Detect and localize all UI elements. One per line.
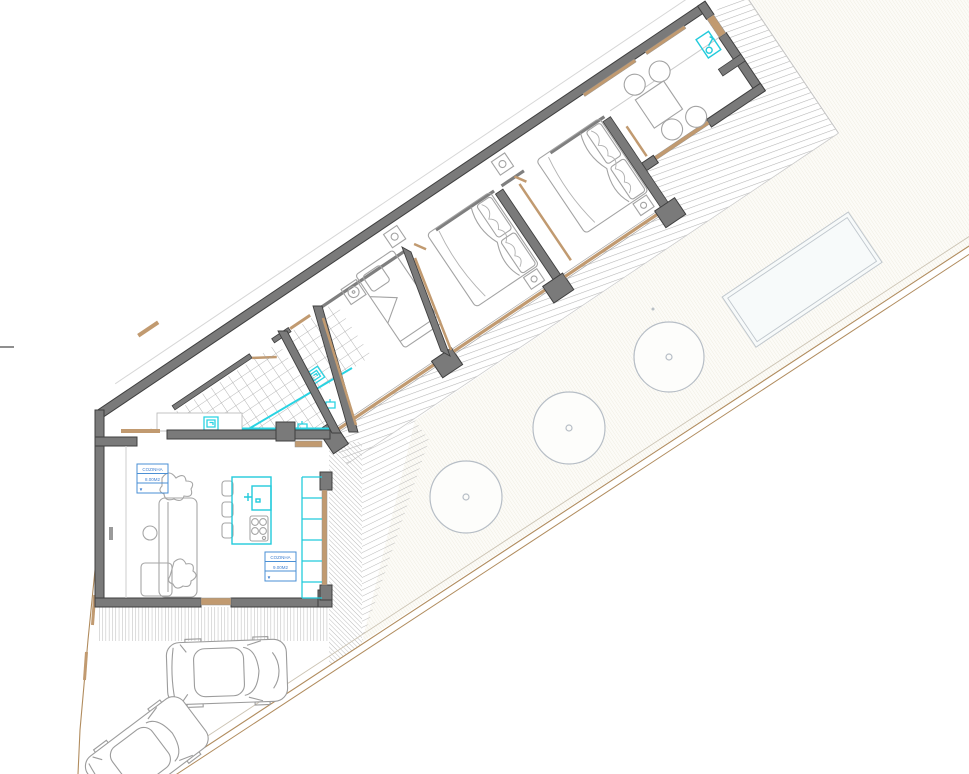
svg-text:8.00M2: 8.00M2 (145, 477, 161, 482)
svg-text:▼: ▼ (267, 575, 271, 580)
svg-text:9.00M2: 9.00M2 (273, 565, 289, 570)
svg-text:COZINHA: COZINHA (142, 467, 162, 472)
svg-text:COZINHA: COZINHA (270, 555, 290, 560)
svg-text:▼: ▼ (139, 487, 143, 492)
